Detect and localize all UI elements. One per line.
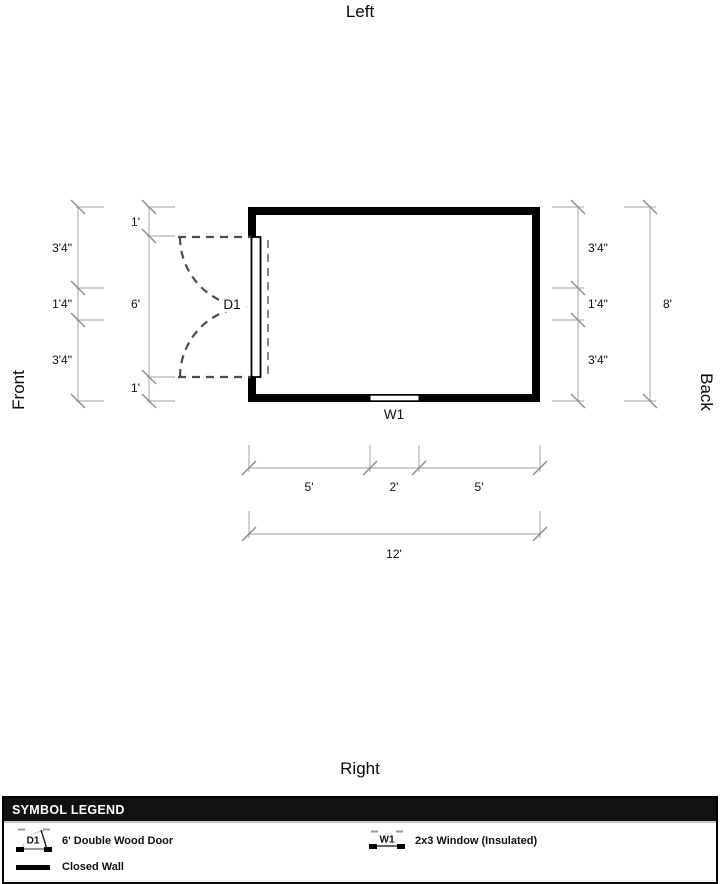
double-door-icon: D1 [16,828,52,854]
legend-window-symbol-tag: W1 [380,835,395,846]
dim-bottom-outer: 12' [242,511,547,561]
dim-label: 1'4" [52,297,72,311]
dim-label: 3'4" [52,353,72,367]
legend-door-label: 6' Double Wood Door [62,835,173,847]
dim-label: 2' [390,480,399,494]
window-w1: W1 [370,395,419,422]
dim-bottom-inner: 5' 2' 5' [242,445,547,494]
dim-right-outer: 8' [624,200,672,408]
dim-right-inner: 3'4" 1'4" 3'4" [552,200,608,408]
dim-label: 12' [386,547,402,561]
dim-label: 6' [131,297,140,311]
dim-label: 8' [663,297,672,311]
legend-closed-wall-label: Closed Wall [62,861,124,873]
door-tag: D1 [223,297,240,312]
dim-left-inner: 1' 6' 1' [131,200,175,408]
wall-top [248,207,540,215]
window-tag: W1 [384,407,404,422]
legend-item-closed-wall: Closed Wall [16,861,369,873]
dim-left-outer: 3'4" 1'4" 3'4" [52,200,104,408]
window-icon: W1 [369,828,405,854]
window-symbol [370,395,419,401]
symbol-legend: SYMBOL LEGEND D1 6' Dou [2,796,718,884]
building-walls [248,207,540,402]
door-d1: D1 [178,237,268,377]
dim-label: 1'4" [588,297,608,311]
wall-right [532,207,540,402]
dim-label: 1' [131,215,140,229]
wall-left-lower [248,377,256,402]
dim-label: 5' [305,480,314,494]
symbol-legend-body: D1 6' Double Wood Door W1 2x3 Wi [4,823,716,877]
wall-left-upper [248,207,256,237]
dim-label: 3'4" [588,241,608,255]
closed-wall-icon [16,865,52,870]
legend-item-door: D1 6' Double Wood Door [16,828,369,854]
orientation-label-bottom: Right [340,759,380,779]
door-swing-arc-bottom [180,307,250,377]
symbol-legend-title: SYMBOL LEGEND [4,798,716,823]
legend-door-symbol-tag: D1 [27,836,40,847]
floor-plan-drawing: 3'4" 1'4" 3'4" 1' 6' 1' [0,0,720,620]
dim-label: 3'4" [588,353,608,367]
dim-label: 1' [131,381,140,395]
dim-label: 5' [475,480,484,494]
legend-window-label: 2x3 Window (Insulated) [415,835,537,847]
legend-item-window: W1 2x3 Window (Insulated) [369,828,716,854]
floor-plan-page: Left Right Front Back 3'4" 1'4" 3'4" [0,0,720,884]
door-slab [252,237,261,377]
dim-label: 3'4" [52,241,72,255]
